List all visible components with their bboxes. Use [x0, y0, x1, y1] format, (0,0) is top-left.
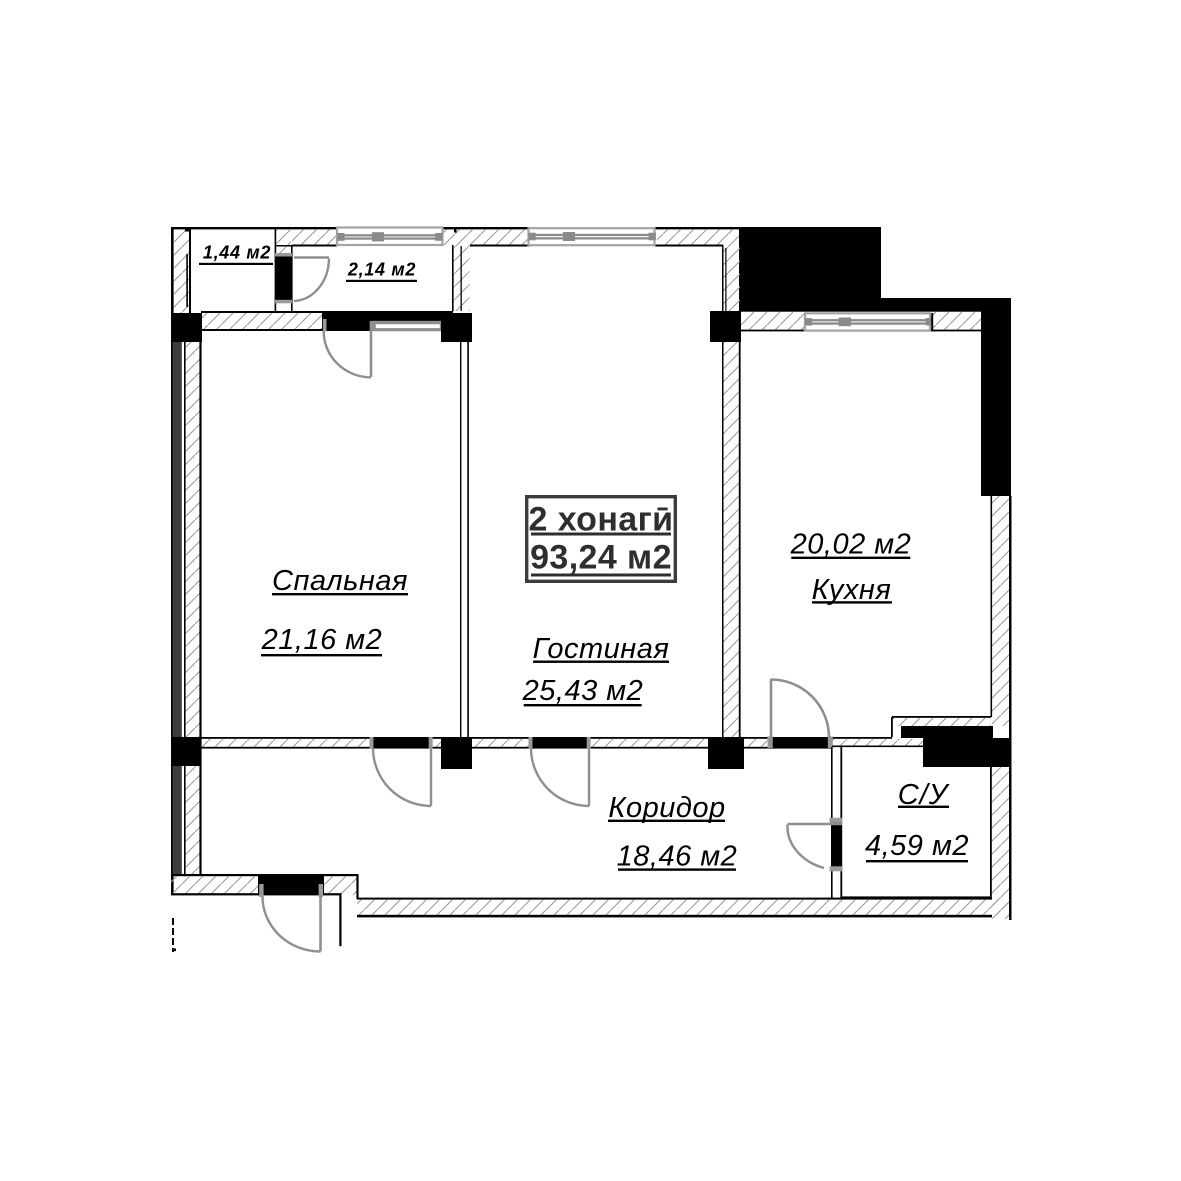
- svg-text:Спальная: Спальная: [272, 565, 408, 597]
- svg-text:18,46 м2: 18,46 м2: [617, 841, 738, 873]
- svg-text:21,16 м2: 21,16 м2: [261, 624, 383, 656]
- svg-text:25,43 м2: 25,43 м2: [522, 675, 644, 707]
- svg-text:Гостиная: Гостиная: [533, 633, 670, 665]
- svg-text:93,24 м2: 93,24 м2: [530, 539, 672, 577]
- svg-text:2,14 м2: 2,14 м2: [347, 260, 416, 280]
- svg-text:Коридор: Коридор: [608, 792, 725, 824]
- svg-text:1,44 м2: 1,44 м2: [203, 243, 271, 263]
- svg-text:20,02 м2: 20,02 м2: [790, 529, 912, 561]
- svg-text:4,59 м2: 4,59 м2: [865, 830, 969, 862]
